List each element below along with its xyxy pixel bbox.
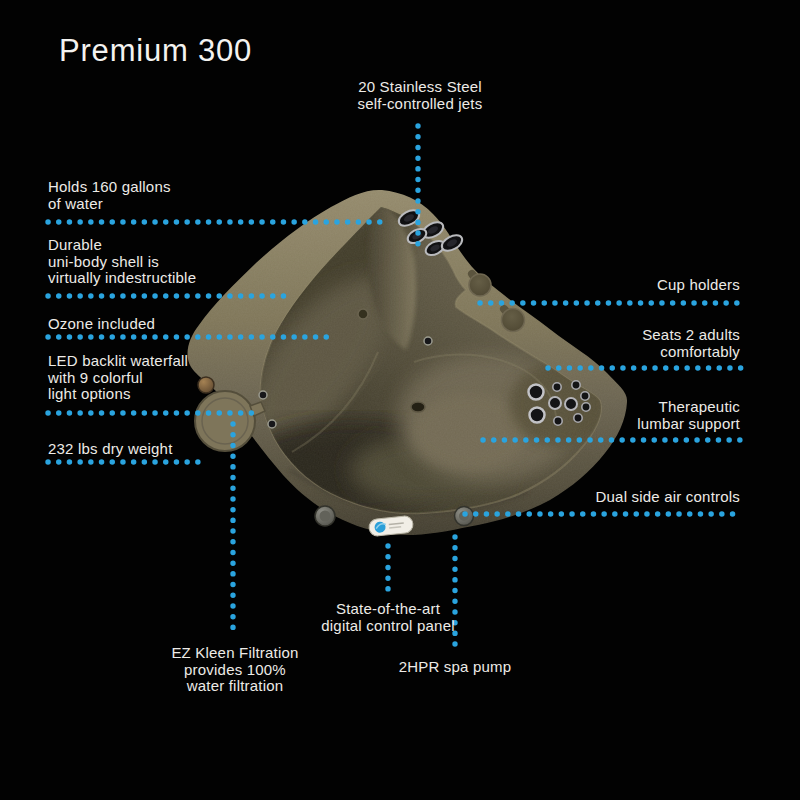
callout-air-controls: Dual side air controls: [596, 489, 740, 506]
callout-gallons: Holds 160 gallons of water: [48, 179, 171, 212]
callout-shell: Durable uni-body shell is virtually inde…: [48, 237, 196, 287]
callout-control-panel: State-of-the-art digital control panel: [288, 601, 488, 634]
waterfall-knob: [198, 377, 214, 393]
callout-cup-holders: Cup holders: [657, 277, 740, 294]
callout-waterfall: LED backlit waterfall with 9 colorful li…: [48, 353, 188, 403]
shell-texture: [170, 170, 640, 550]
callout-seats: Seats 2 adults comfortably: [642, 327, 740, 360]
ozone-fitting: [358, 309, 368, 319]
callout-weight: 232 lbs dry weight: [48, 441, 173, 458]
callout-lumbar: Therapeutic lumbar support: [637, 399, 740, 432]
floor-drain: [411, 402, 425, 412]
page-title: Premium 300: [59, 33, 252, 69]
air-control-left: [315, 506, 335, 526]
callout-jets: 20 Stainless Steel self-controlled jets: [320, 79, 520, 112]
callout-filtration: EZ Kleen Filtration provides 100% water …: [135, 645, 335, 695]
spa-infographic: Premium 300 20 Stainless Steel self-cont…: [0, 0, 800, 800]
cup-holder-2: [502, 309, 525, 332]
callout-pump: 2HPR spa pump: [355, 659, 555, 676]
hot-tub-illustration: [170, 170, 640, 550]
callout-ozone: Ozone included: [48, 316, 155, 333]
cup-holder-1: [469, 274, 491, 296]
